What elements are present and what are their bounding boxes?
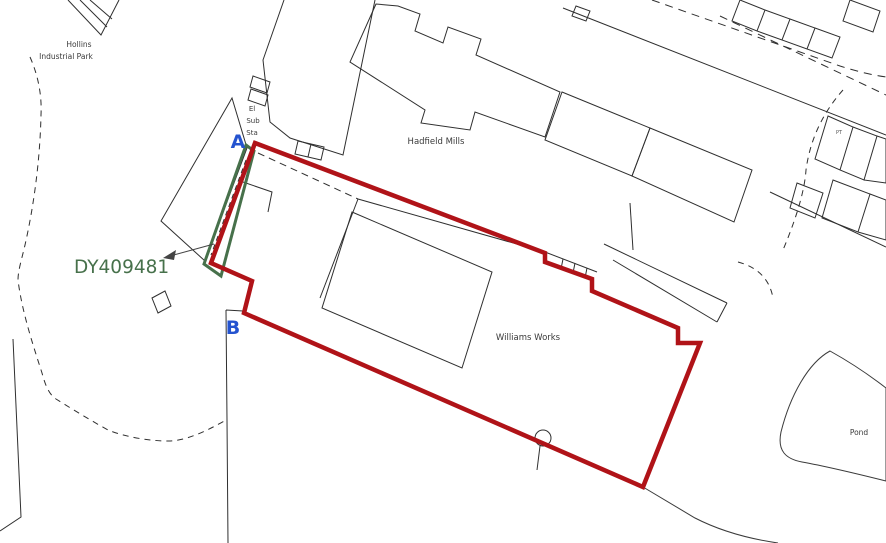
track-dash-mid <box>738 262 773 298</box>
dashed-linework <box>18 0 886 441</box>
building-williams-works <box>322 212 492 368</box>
label-williams-works: Williams Works <box>496 333 561 343</box>
label-el-sub-sta-2: Sub <box>246 117 260 125</box>
building-terraces <box>732 0 880 58</box>
building-hollins <box>68 0 119 35</box>
building-hadfield-far-east <box>632 128 752 222</box>
pond-outline <box>780 351 886 481</box>
marker-a: A <box>231 131 246 153</box>
label-pond: Pond <box>850 428 869 437</box>
water-features <box>643 351 886 543</box>
label-pt: PT <box>836 130 843 136</box>
building-el-sub-sta <box>263 0 375 155</box>
red-title-boundary <box>211 143 700 487</box>
building-hadfield-east <box>545 92 650 176</box>
stream-line <box>643 487 778 543</box>
map-canvas[interactable]: Hollins Industrial Park El Sub Sta Hadfi… <box>0 0 886 543</box>
labels: Hollins Industrial Park El Sub Sta Hadfi… <box>39 40 868 437</box>
label-hadfield-mills: Hadfield Mills <box>408 137 465 147</box>
label-hollins-1: Hollins <box>66 40 91 49</box>
marker-b: B <box>226 317 240 339</box>
building-hadfield-central <box>350 4 560 137</box>
title-plan-map: Hollins Industrial Park El Sub Sta Hadfi… <box>0 0 886 543</box>
label-el-sub-sta-3: Sta <box>246 129 257 137</box>
track-dash-right <box>783 90 843 250</box>
strip-center-dashes <box>211 160 246 255</box>
title-number-label: DY409481 <box>74 257 169 278</box>
label-hollins-2: Industrial Park <box>39 52 93 61</box>
label-el-sub-sta-1: El <box>249 105 255 113</box>
